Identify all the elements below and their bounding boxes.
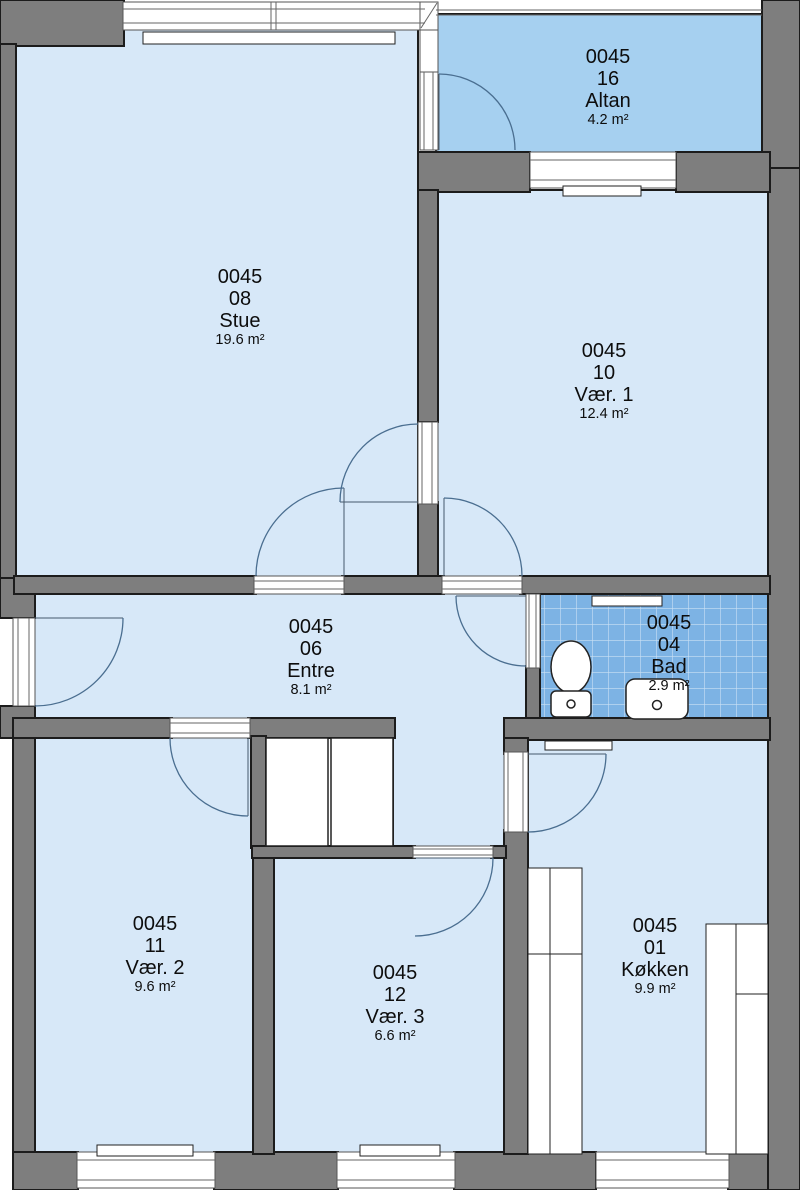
- room-label-entre: 0045 06 Entre 8.1 m²: [287, 616, 335, 699]
- shelf: [592, 596, 662, 606]
- radiator: [97, 1145, 193, 1156]
- room-number: 01: [621, 937, 689, 959]
- room-name: Vær. 3: [366, 1006, 425, 1028]
- room-number: 04: [647, 634, 692, 656]
- room-label-koekken: 0045 01 Køkken 9.9 m²: [621, 915, 689, 998]
- room-area: 2.9 m²: [647, 678, 692, 695]
- room-code: 0045: [575, 340, 634, 362]
- door-opening-entrance: [13, 618, 35, 706]
- room-area: 9.9 m²: [621, 981, 689, 998]
- window-stue-top: [123, 2, 425, 30]
- room-code: 0045: [585, 46, 631, 68]
- room-name: Vær. 2: [126, 957, 185, 979]
- radiator: [360, 1145, 440, 1156]
- room-number: 16: [585, 68, 631, 90]
- kitchen-counter: [528, 868, 582, 1154]
- radiator: [143, 32, 395, 44]
- room-code: 0045: [215, 266, 264, 288]
- window-vaer2-bottom: [77, 1152, 215, 1188]
- window-vaer1-top: [530, 152, 676, 188]
- room-area: 9.6 m²: [126, 979, 185, 996]
- wardrobe: [266, 738, 328, 846]
- window-vaer3-bottom: [337, 1152, 455, 1188]
- room-number: 10: [575, 362, 634, 384]
- room-area: 8.1 m²: [287, 682, 335, 699]
- room-label-vaer2: 0045 11 Vær. 2 9.6 m²: [126, 913, 185, 996]
- room-name: Entre: [287, 660, 335, 682]
- room-label-bad: 0045 04 Bad 2.9 m²: [647, 612, 692, 695]
- room-code: 0045: [647, 612, 692, 634]
- door-opening-entre-vaer1: [442, 576, 522, 594]
- door-opening-vaer3: [413, 846, 493, 858]
- door-opening-stue-vaer1: [418, 422, 438, 504]
- room-label-vaer3: 0045 12 Vær. 3 6.6 m²: [366, 962, 425, 1045]
- door-opening-bad: [526, 594, 540, 668]
- shelf: [545, 741, 612, 750]
- room-number: 08: [215, 288, 264, 310]
- wardrobe: [331, 738, 393, 846]
- room-area: 6.6 m²: [366, 1028, 425, 1045]
- room-label-vaer1: 0045 10 Vær. 1 12.4 m²: [575, 340, 634, 423]
- room-code: 0045: [366, 962, 425, 984]
- room-area: 19.6 m²: [215, 332, 264, 349]
- room-code: 0045: [126, 913, 185, 935]
- room-label-stue: 0045 08 Stue 19.6 m²: [215, 266, 264, 349]
- room-name: Bad: [647, 656, 692, 678]
- room-number: 06: [287, 638, 335, 660]
- room-name: Altan: [585, 90, 631, 112]
- radiator: [563, 186, 641, 196]
- door-opening-altan: [420, 72, 438, 150]
- room-number: 11: [126, 935, 185, 957]
- window-altan-side: [420, 30, 438, 72]
- window-koekken-bottom: [596, 1152, 729, 1188]
- door-opening-vaer2: [170, 718, 250, 738]
- room-area: 4.2 m²: [585, 112, 631, 129]
- wardrobes: [266, 738, 393, 846]
- room-code: 0045: [621, 915, 689, 937]
- room-name: Vær. 1: [575, 384, 634, 406]
- room-code: 0045: [287, 616, 335, 638]
- room-name: Stue: [215, 310, 264, 332]
- door-opening-entre-stue: [254, 576, 344, 594]
- room-label-altan: 0045 16 Altan 4.2 m²: [585, 46, 631, 129]
- kitchen-counter: [706, 924, 768, 1154]
- room-number: 12: [366, 984, 425, 1006]
- toilet-icon: [551, 641, 591, 717]
- room-name: Køkken: [621, 959, 689, 981]
- floor-plan: 0045 16 Altan 4.2 m² 0045 08 Stue 19.6 m…: [0, 0, 800, 1190]
- room-area: 12.4 m²: [575, 406, 634, 423]
